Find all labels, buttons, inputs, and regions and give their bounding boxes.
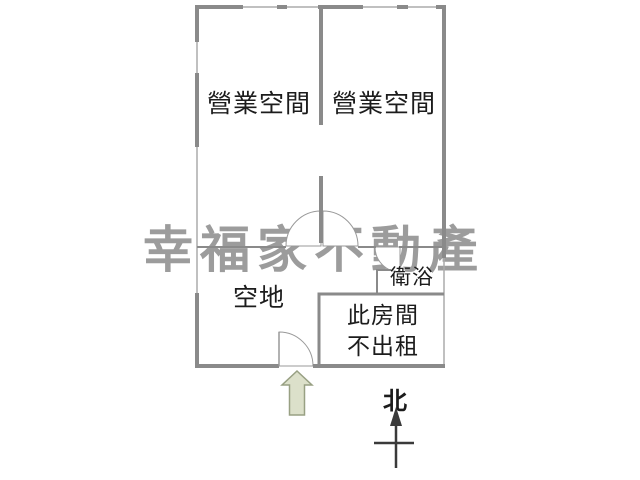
label-not-rented-line1: 此房間 [321,301,445,332]
label-open-space: 空地 [197,278,321,314]
label-not-rented-line2: 不出租 [321,332,445,363]
label-bathroom: 衛浴 [390,261,434,291]
label-not-rented-room: 此房間 不出租 [321,301,445,363]
label-north: 北 [383,381,408,416]
floorplan-canvas: 幸福家不動產 [0,0,640,480]
labels-layer: 營業空間 營業空間 空地 衛浴 此房間 不出租 北 [0,0,640,480]
label-business-space-left: 營業空間 [197,84,321,120]
label-business-space-right: 營業空間 [323,84,445,120]
